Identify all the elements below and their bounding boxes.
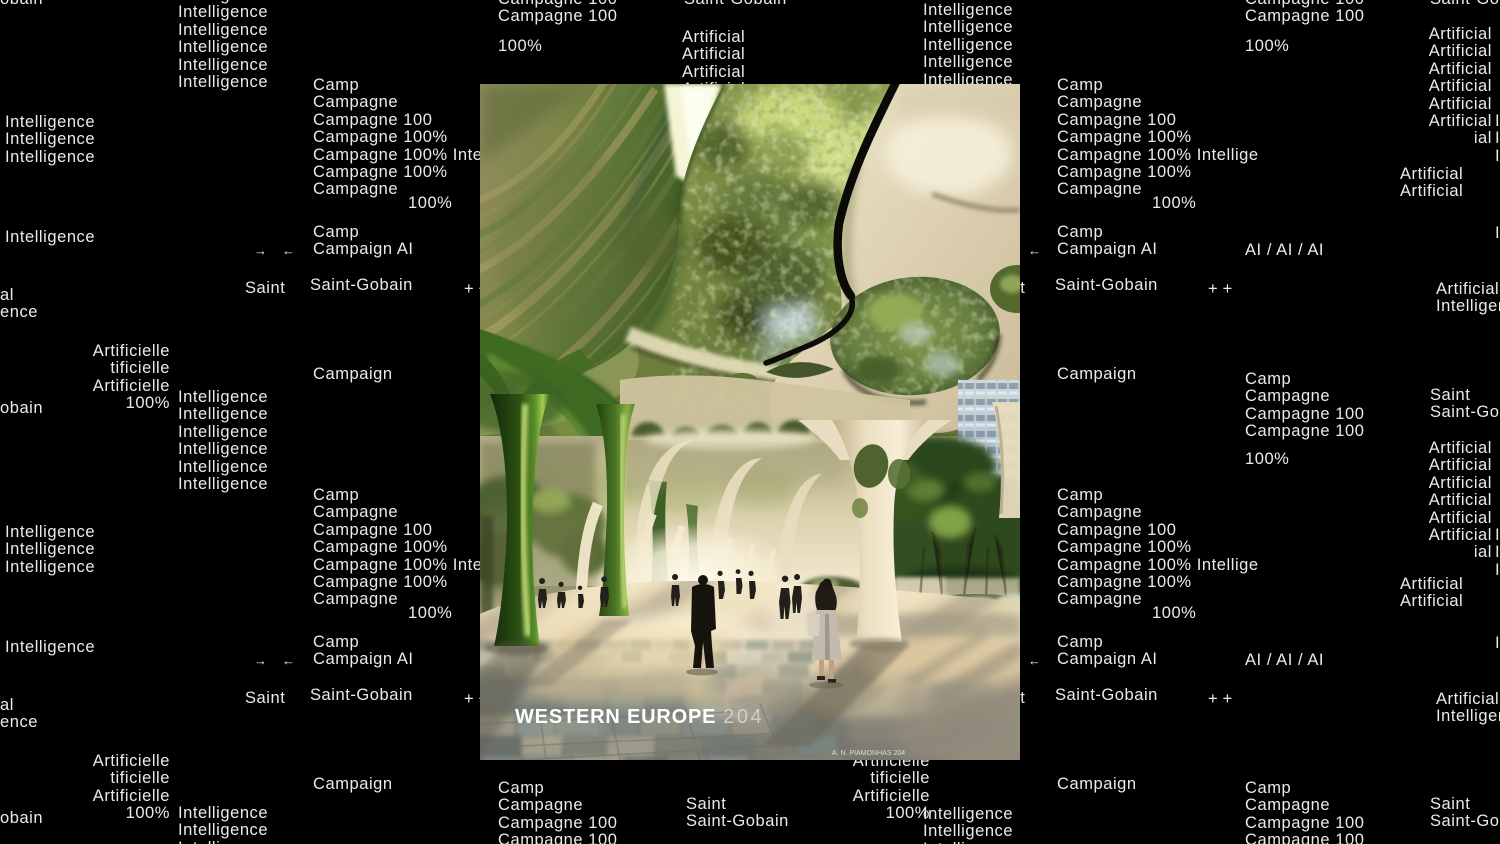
- svg-text:A. N. PIAMONHAS 204: A. N. PIAMONHAS 204: [832, 750, 905, 757]
- svg-text:WESTERN EUROPE204: WESTERN EUROPE204: [515, 706, 764, 728]
